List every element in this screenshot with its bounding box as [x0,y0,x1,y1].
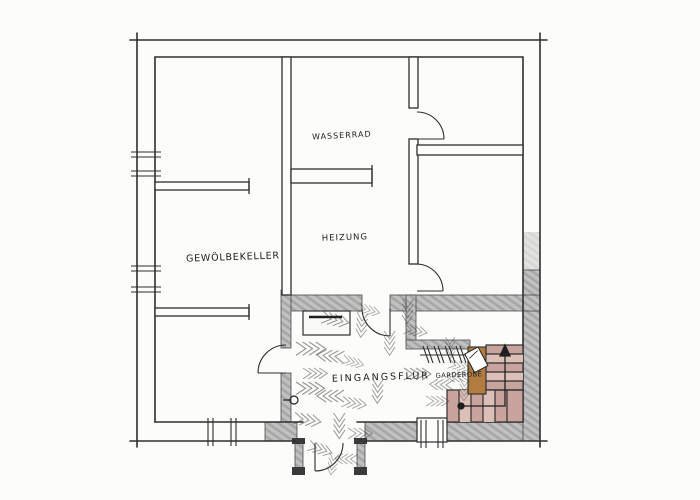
paper-background [0,0,700,500]
floorplan-sheet: WASSERRAD HEIZUNG GEWÖLBEKELLER EINGANGS… [0,0,700,500]
floorplan-drawing: WASSERRAD HEIZUNG GEWÖLBEKELLER EINGANGS… [0,0,700,500]
room-label-heizung: HEIZUNG [322,232,369,244]
room-label-garderobe: GARDEROBE [435,370,482,380]
